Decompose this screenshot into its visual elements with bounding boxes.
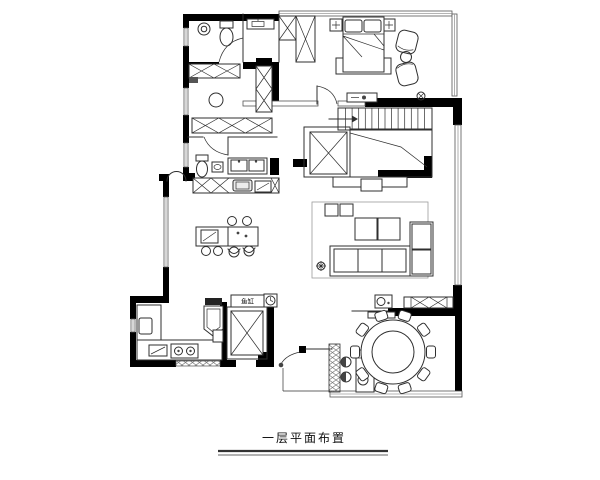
toilet-icon: [196, 155, 208, 177]
bathroom-top: [198, 14, 274, 62]
sideboard-icon: [404, 297, 453, 308]
side-table-icon: [325, 204, 338, 216]
wardrobe-icon: [279, 16, 315, 62]
small-sink-icon: [212, 162, 223, 172]
fish-tank-label: 鱼缸: [241, 297, 255, 306]
clock-icon: [264, 294, 277, 307]
appliance-icon: [255, 181, 271, 192]
window: [455, 125, 461, 285]
washbasin-icon: [198, 23, 210, 35]
cabinet-row: [193, 178, 279, 193]
bathroom-middle: [188, 137, 277, 177]
sink-icon: [149, 345, 167, 356]
window: [164, 197, 168, 267]
floor-plan-drawing: 鱼缸: [0, 0, 600, 480]
plan-title-text: 一层平面布置: [262, 431, 346, 445]
side-table-icon: [340, 204, 353, 216]
chair-icon: [243, 217, 252, 226]
console-table: [347, 93, 377, 102]
stool-icon: [341, 372, 351, 382]
wardrobe-icon: [189, 64, 240, 78]
chair-icon: [202, 247, 211, 256]
under-stair-storage: [333, 129, 432, 191]
stool-icon: [209, 93, 223, 107]
armchair-icon: [395, 61, 420, 87]
kitchen: 鱼缸: [137, 294, 277, 360]
radiator-column: [329, 344, 340, 392]
window: [184, 143, 188, 167]
wall-cabinet: [213, 330, 223, 342]
vent-strip: [176, 361, 220, 366]
shelf: [247, 19, 274, 29]
window: [330, 391, 462, 397]
coffee-table-icon: [355, 218, 377, 240]
window: [131, 319, 135, 332]
toilet-icon: [220, 21, 233, 46]
door-swing: [317, 86, 337, 104]
chair-icon: [228, 217, 237, 226]
storage-unit-icon: [227, 307, 267, 359]
chair-icon: [243, 246, 255, 256]
kitchen-island: [196, 217, 258, 258]
coffee-table-icon: [378, 218, 400, 240]
floor-plan-sheet: 鱼缸: [0, 0, 600, 480]
tiny-door-tag: [189, 77, 198, 83]
vanity-double-sink: [228, 158, 267, 174]
fish-tank: 鱼缸: [231, 295, 264, 307]
stove-icon: [171, 344, 198, 358]
walk-in-closet: [189, 64, 272, 133]
window: [452, 14, 457, 96]
window: [184, 88, 188, 115]
appliance-icon: [139, 318, 152, 334]
partition-wall: [243, 101, 318, 106]
window: [279, 11, 452, 16]
floor-drain-icon: [316, 261, 326, 271]
wardrobe-icon: [192, 118, 272, 133]
bed-icon: [343, 17, 384, 72]
door-swing: [204, 137, 228, 155]
chair-icon: [228, 247, 240, 257]
living-room: [312, 202, 433, 278]
stool-icon: [341, 357, 351, 367]
nightstand-icon: [330, 19, 342, 31]
chair-icon: [427, 346, 436, 358]
nightstand-icon: [383, 19, 395, 31]
window: [184, 28, 188, 46]
elevator: [304, 127, 350, 177]
stair-direction-icon: [329, 116, 358, 123]
cooktop-icon: [201, 230, 218, 243]
chair-icon: [214, 247, 223, 256]
wardrobe-icon: [256, 66, 272, 112]
sheet-title: 一层平面布置: [218, 431, 388, 455]
chair-icon: [351, 346, 360, 358]
entry-door: [279, 349, 332, 391]
appliance-icon: [375, 295, 392, 308]
master-bedroom: [279, 14, 425, 104]
